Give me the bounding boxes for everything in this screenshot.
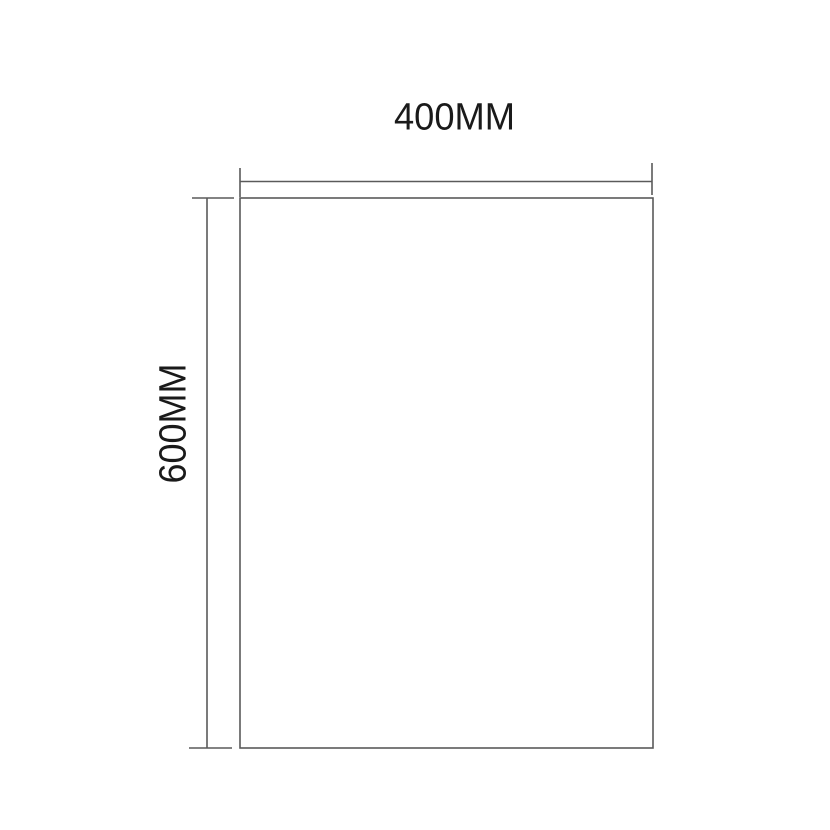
svg-text:600MM: 600MM [153,364,195,484]
svg-text:400MM: 400MM [394,97,515,139]
